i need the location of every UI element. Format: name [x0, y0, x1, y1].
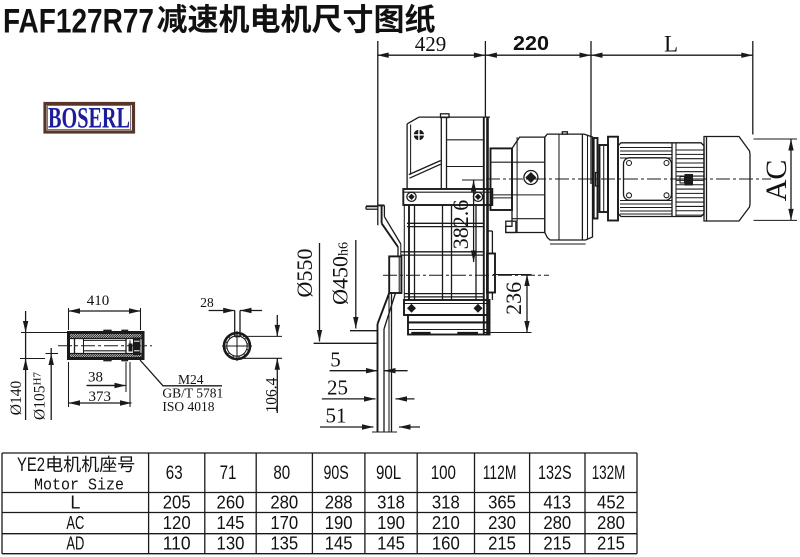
svg-text:90S: 90S — [324, 463, 349, 484]
svg-text:25: 25 — [327, 376, 348, 400]
svg-text:112M: 112M — [483, 463, 517, 484]
svg-text:FAF127R77: FAF127R77 — [3, 3, 154, 41]
svg-text:280: 280 — [597, 513, 625, 533]
svg-text:365: 365 — [488, 492, 516, 512]
svg-text:145: 145 — [325, 534, 353, 554]
svg-text:145: 145 — [217, 513, 245, 533]
svg-text:318: 318 — [377, 492, 405, 512]
svg-text:Ø140: Ø140 — [8, 381, 25, 416]
svg-text:110: 110 — [163, 534, 191, 554]
svg-text:106.4: 106.4 — [264, 377, 281, 412]
svg-text:230: 230 — [488, 513, 516, 533]
svg-text:L: L — [70, 492, 80, 512]
svg-text:382.6: 382.6 — [448, 200, 473, 250]
svg-text:410: 410 — [87, 293, 110, 309]
svg-text:215: 215 — [597, 534, 625, 554]
svg-text:373: 373 — [89, 389, 112, 405]
svg-text:205: 205 — [163, 492, 191, 512]
svg-text:170: 170 — [270, 513, 298, 533]
svg-text:215: 215 — [488, 534, 516, 554]
svg-text:120: 120 — [163, 513, 191, 533]
svg-text:28: 28 — [200, 295, 214, 310]
svg-text:38: 38 — [88, 370, 103, 386]
svg-text:AD: AD — [66, 534, 84, 554]
svg-text:190: 190 — [325, 513, 353, 533]
svg-text:80: 80 — [273, 463, 290, 484]
svg-text:260: 260 — [217, 492, 245, 512]
svg-text:100: 100 — [431, 463, 456, 484]
svg-text:160: 160 — [432, 534, 460, 554]
svg-text:51: 51 — [326, 404, 347, 428]
svg-text:280: 280 — [270, 492, 298, 512]
svg-text:215: 215 — [543, 534, 571, 554]
svg-text:135: 135 — [270, 534, 298, 554]
svg-text:ISO 4018: ISO 4018 — [162, 399, 214, 414]
svg-text:145: 145 — [377, 534, 405, 554]
svg-text:288: 288 — [325, 492, 353, 512]
svg-text:429: 429 — [415, 32, 447, 56]
svg-text:71: 71 — [220, 463, 237, 484]
svg-text:AC: AC — [760, 160, 793, 202]
svg-text:63: 63 — [166, 463, 183, 484]
svg-text:L: L — [664, 32, 678, 57]
svg-text:190: 190 — [377, 513, 405, 533]
svg-text:132M: 132M — [592, 463, 626, 484]
svg-text:Ø550: Ø550 — [292, 249, 317, 298]
svg-text:280: 280 — [543, 513, 571, 533]
svg-text:132S: 132S — [538, 463, 572, 484]
svg-text:210: 210 — [432, 513, 460, 533]
svg-text:220: 220 — [513, 33, 549, 55]
svg-text:5: 5 — [330, 348, 341, 372]
svg-text:AC: AC — [66, 513, 84, 533]
svg-text:YE2: YE2 — [17, 455, 45, 476]
svg-text:130: 130 — [217, 534, 245, 554]
svg-text:318: 318 — [432, 492, 460, 512]
svg-text:236: 236 — [501, 282, 526, 315]
svg-text:BOSERL: BOSERL — [48, 102, 130, 135]
svg-text:90L: 90L — [376, 463, 401, 484]
svg-text:452: 452 — [597, 492, 625, 512]
svg-text:413: 413 — [543, 492, 571, 512]
